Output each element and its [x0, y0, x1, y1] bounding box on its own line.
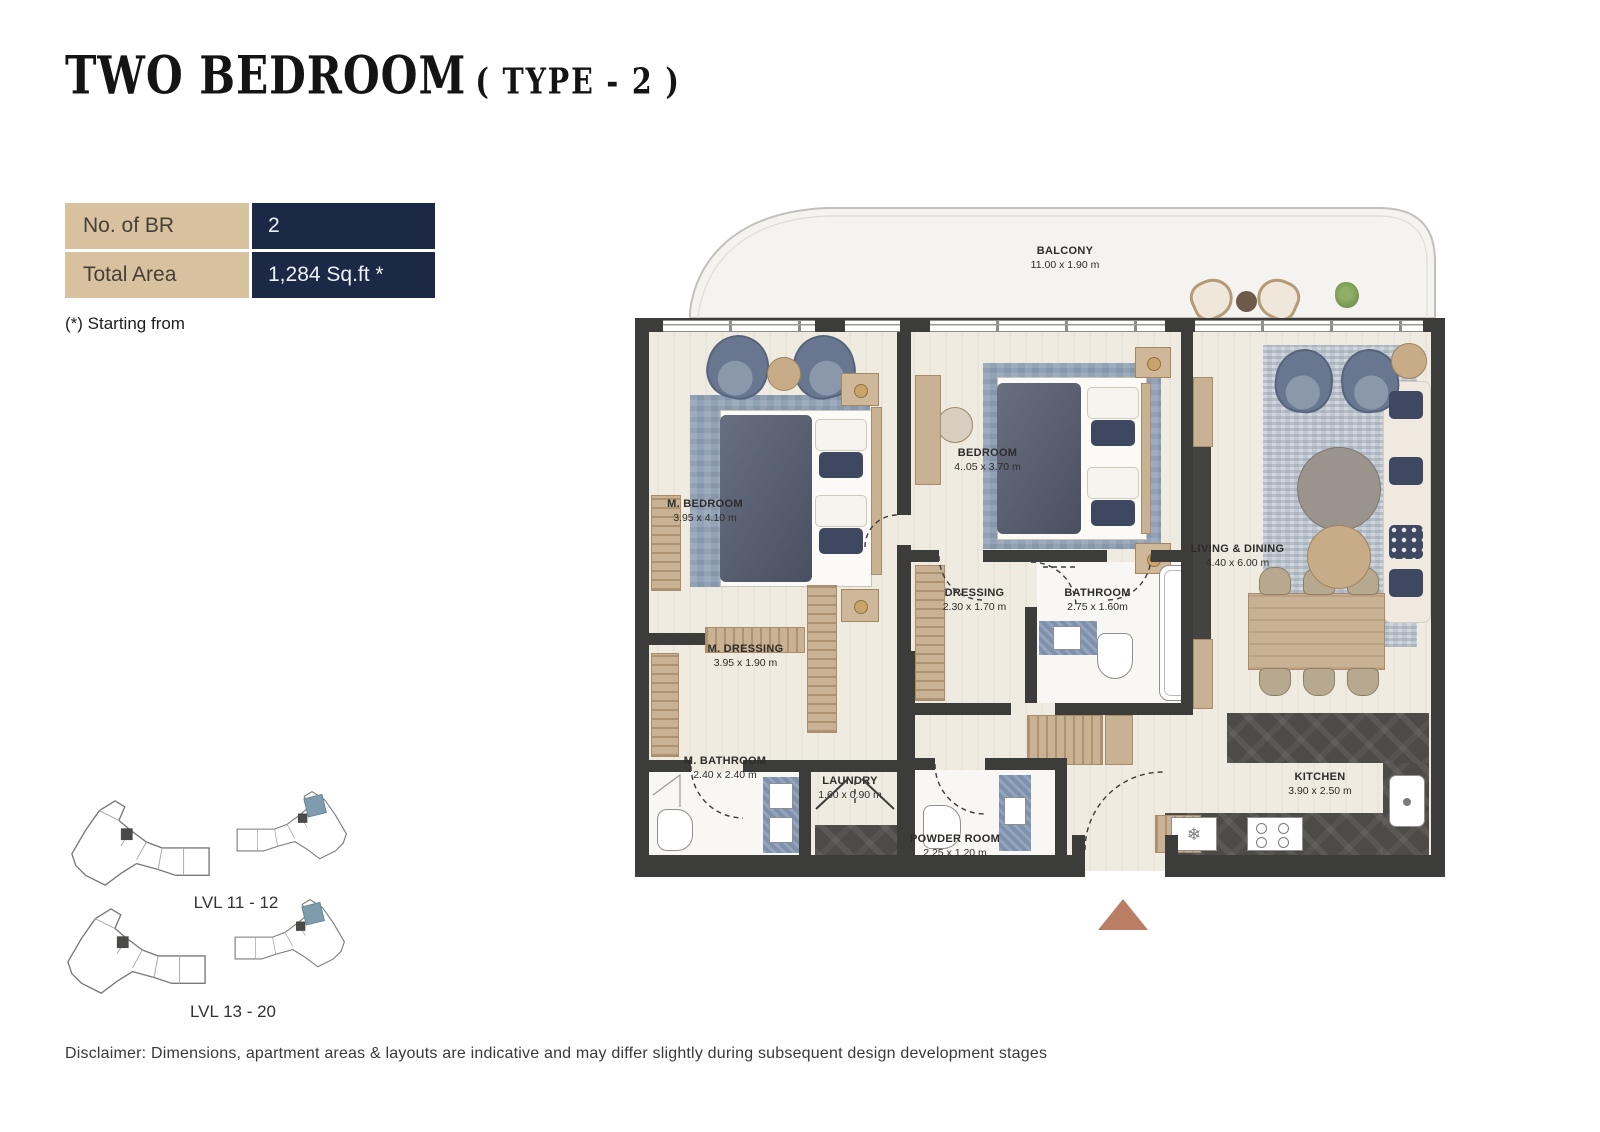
spec-value-br: 2 — [252, 203, 435, 249]
title-main: TWO BEDROOM — [65, 44, 466, 106]
floor-plan: ❄ — [635, 195, 1445, 935]
balcony-table — [1236, 291, 1257, 312]
nightstand — [841, 373, 879, 406]
tv-cabinet — [1193, 639, 1213, 709]
wall-segment — [1055, 758, 1067, 855]
pillow — [1091, 420, 1135, 446]
wall-segment — [1165, 835, 1178, 859]
window — [845, 320, 900, 332]
nightstand — [841, 589, 879, 622]
title-suffix: ( TYPE - 2 ) — [475, 62, 680, 103]
room-label-powder-room: POWDER ROOM2.25 x 1.20 m — [885, 833, 1025, 860]
pillow — [1087, 467, 1139, 499]
pillow — [1389, 391, 1423, 419]
wall-segment — [1181, 332, 1193, 703]
nightstand — [1135, 347, 1171, 378]
wall-segment — [897, 332, 911, 515]
room-label-dressing: DRESSING2.30 x 1.70 m — [907, 587, 1042, 614]
level-label-13-20: LVL 13 - 20 — [158, 1002, 308, 1022]
sink — [1004, 797, 1026, 825]
dining-chair — [1303, 668, 1335, 696]
tv-cabinet — [1193, 377, 1213, 447]
wall-segment — [897, 651, 915, 855]
toilet — [1097, 633, 1133, 679]
dressing-wardrobe — [915, 565, 945, 701]
wall-segment — [1072, 835, 1085, 859]
bed-headboard — [1141, 383, 1151, 534]
coffee-table — [1297, 447, 1381, 531]
spec-value-area: 1,284 Sq.ft * — [252, 252, 435, 298]
pillow — [819, 528, 863, 554]
toilet — [657, 809, 693, 851]
window — [1195, 320, 1423, 332]
dining-chair — [1347, 668, 1379, 696]
dining-chair — [1259, 668, 1291, 696]
window — [663, 320, 815, 332]
room-label-laundry: LAUNDRY1.60 x 0.90 m — [785, 775, 915, 802]
pillow — [815, 419, 867, 451]
side-table — [767, 357, 801, 391]
wall-segment — [1431, 318, 1445, 877]
stove — [1247, 817, 1303, 851]
sink — [1053, 626, 1081, 650]
spec-label-br: No. of BR — [65, 203, 249, 249]
page-title: TWO BEDROOM( TYPE - 2 ) — [65, 52, 734, 106]
room-label-m-bedroom: M. BEDROOM3.95 x 4.10 m — [635, 498, 775, 525]
pillow — [819, 452, 863, 478]
room-label-living-dining: LIVING & DINING4.40 x 6.00 m — [1155, 543, 1320, 570]
sink — [769, 817, 793, 843]
wall-segment — [911, 550, 939, 562]
disclaimer-text: Disclaimer: Dimensions, apartment areas … — [65, 1045, 1047, 1063]
dining-table — [1248, 593, 1385, 670]
wall-segment — [1025, 607, 1037, 703]
room-label-bathroom: BATHROOM2.75 x 1.60m — [1030, 587, 1165, 614]
wall-segment — [1055, 703, 1193, 715]
pillow — [1389, 569, 1423, 597]
wall-segment — [1165, 855, 1445, 877]
pillow — [1091, 500, 1135, 526]
pillow — [1389, 457, 1423, 485]
room-label-m-bathroom: M. BATHROOM2.40 x 2.40 m — [655, 755, 795, 782]
pillow — [1087, 387, 1139, 419]
patterned-pillow — [1389, 525, 1423, 559]
room-label-m-dressing: M. DRESSING3.95 x 1.90 m — [673, 643, 818, 670]
wall-segment — [915, 758, 935, 770]
level-label-11-12: LVL 11 - 12 — [161, 893, 311, 913]
desk-chair — [937, 407, 973, 443]
room-label-kitchen: KITCHEN3.90 x 2.50 m — [1230, 771, 1410, 798]
side-table — [1391, 343, 1427, 379]
window — [930, 320, 1165, 332]
room-label-balcony: BALCONY11.00 x 1.90 m — [985, 245, 1145, 272]
cabinet — [1105, 715, 1133, 765]
wall-segment — [911, 703, 1011, 715]
spec-label-area: Total Area — [65, 252, 249, 298]
m-bed-headboard — [871, 407, 882, 575]
pillow — [815, 495, 867, 527]
dining-chair — [1259, 567, 1291, 595]
floorplan-page: TWO BEDROOM( TYPE - 2 ) No. of BR 2 Tota… — [0, 0, 1600, 1132]
starting-from-note: (*) Starting from — [65, 314, 185, 334]
plant — [1335, 282, 1359, 308]
wall-segment — [983, 550, 1107, 562]
wall-segment — [635, 318, 649, 877]
room-label-bedroom: BEDROOM4..05 x 3.70 m — [915, 447, 1060, 474]
kitchen-island — [1227, 713, 1429, 763]
